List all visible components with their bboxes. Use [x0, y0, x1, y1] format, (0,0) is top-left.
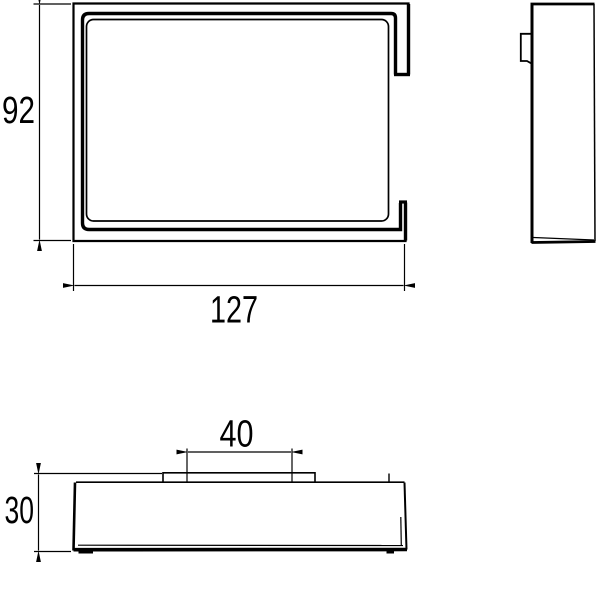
body-right-inner-line	[401, 517, 402, 546]
side-body-bottom-edge	[532, 242, 596, 243]
front-width-dimension-label: 127	[210, 290, 258, 332]
plate-width-dimension-label: 40	[220, 414, 254, 456]
dimension-drawing: 92 127 40 30	[0, 0, 600, 600]
depth-dimension-label: 30	[5, 490, 35, 532]
front-height-dimension-label: 92	[2, 90, 35, 132]
left-foot	[79, 550, 94, 554]
canvas-background	[0, 0, 600, 600]
right-foot	[387, 550, 395, 554]
side-body-right-edge	[594, 4, 595, 241]
body-left-edge	[74, 483, 76, 551]
technical-drawing-canvas: 92 127 40 30	[0, 0, 600, 600]
